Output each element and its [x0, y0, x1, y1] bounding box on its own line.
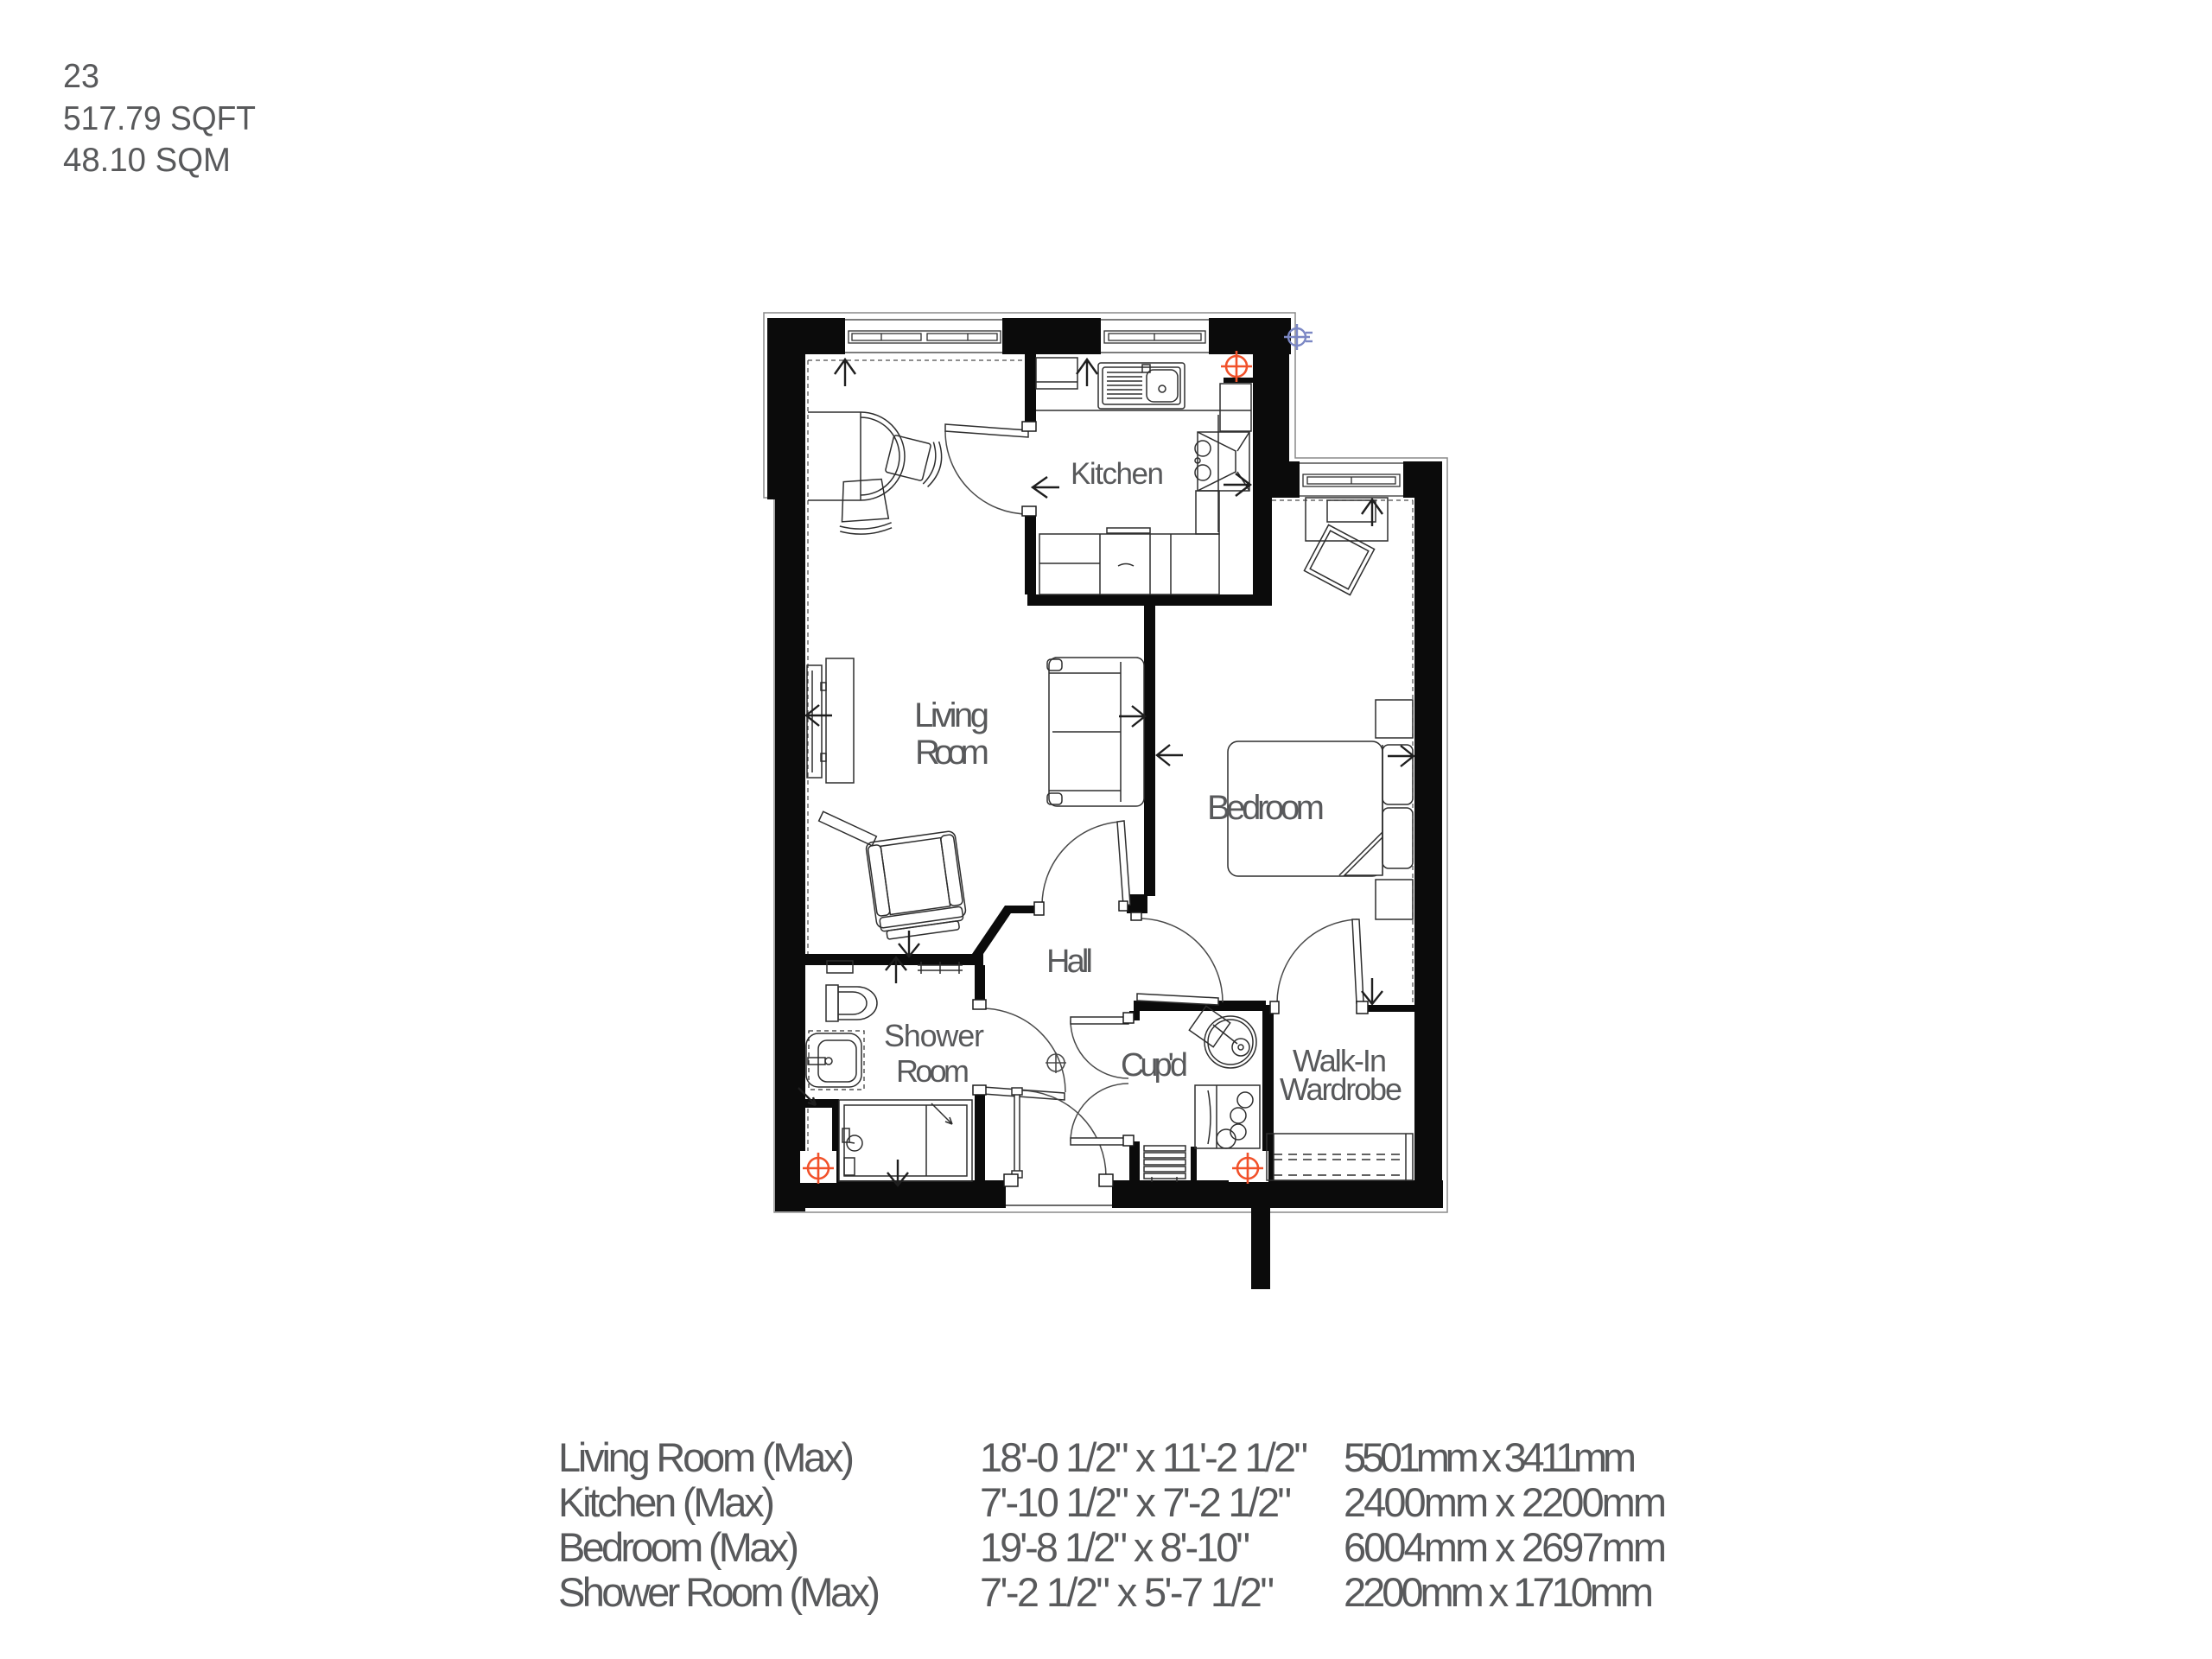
svg-text:Wardrobe: Wardrobe	[1280, 1071, 1402, 1107]
svg-text:Bedroom (Max): Bedroom (Max)	[558, 1524, 799, 1570]
svg-text:7'-10 1/2" x 7'-2 1/2": 7'-10 1/2" x 7'-2 1/2"	[980, 1479, 1292, 1525]
svg-text:19'-8 1/2" x 8'-10": 19'-8 1/2" x 8'-10"	[980, 1524, 1250, 1570]
svg-text:Shower: Shower	[884, 1018, 984, 1053]
svg-text:18'-0 1/2" x 11'-2 1/2": 18'-0 1/2" x 11'-2 1/2"	[980, 1434, 1308, 1480]
svg-text:2200mm x 1710mm: 2200mm x 1710mm	[1344, 1569, 1654, 1615]
svg-text:48.10 SQM: 48.10 SQM	[63, 142, 231, 179]
svg-text:Living: Living	[914, 696, 989, 734]
svg-text:Kitchen (Max): Kitchen (Max)	[558, 1479, 775, 1525]
svg-text:Room: Room	[896, 1053, 969, 1089]
svg-text:2400mm x 2200mm: 2400mm x 2200mm	[1344, 1479, 1667, 1525]
svg-text:5501mm x 3411mm: 5501mm x 3411mm	[1344, 1434, 1637, 1480]
svg-text:Kitchen: Kitchen	[1071, 457, 1164, 491]
svg-text:517.79 SQFT: 517.79 SQFT	[63, 100, 256, 137]
svg-text:Shower Room (Max): Shower Room (Max)	[558, 1569, 880, 1615]
svg-text:7'-2 1/2" x 5'-7 1/2": 7'-2 1/2" x 5'-7 1/2"	[980, 1569, 1274, 1615]
svg-text:23: 23	[63, 58, 99, 95]
svg-text:Bedroom: Bedroom	[1207, 789, 1325, 827]
svg-text:Living Room (Max): Living Room (Max)	[558, 1434, 855, 1480]
svg-text:6004mm x 2697mm: 6004mm x 2697mm	[1344, 1524, 1667, 1570]
svg-text:Room: Room	[915, 734, 989, 772]
svg-text:Cup'd: Cup'd	[1121, 1047, 1188, 1084]
svg-text:Hall: Hall	[1046, 944, 1093, 980]
